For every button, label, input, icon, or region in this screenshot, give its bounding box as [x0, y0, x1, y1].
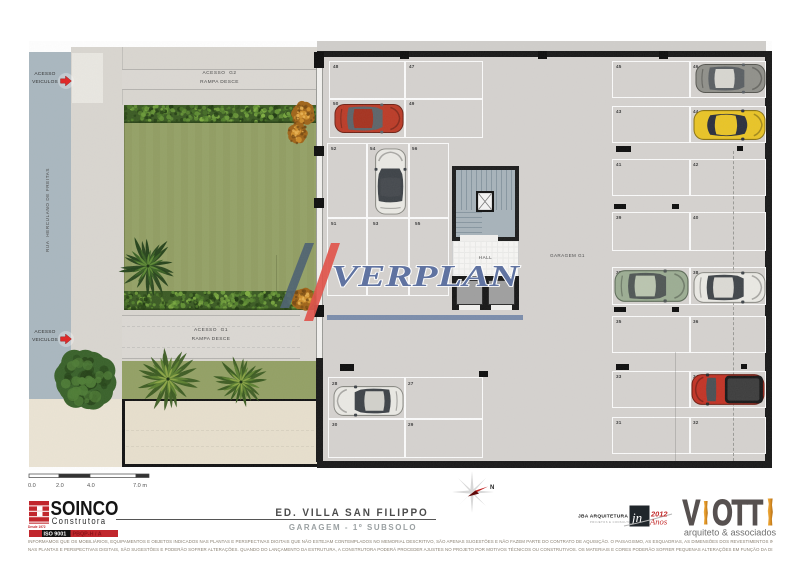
svg-text:Desde 1972: Desde 1972 — [28, 525, 46, 529]
svg-text:Anos: Anos — [649, 517, 668, 527]
svg-text:4.0: 4.0 — [87, 483, 95, 489]
svg-text:7.0 m: 7.0 m — [133, 483, 147, 489]
svg-text:VERPLAN: VERPLAN — [331, 259, 520, 293]
svg-text:arquiteto & associados: arquiteto & associados — [684, 527, 777, 537]
svg-text:PBQP-H / A: PBQP-H / A — [73, 532, 102, 538]
svg-text:N: N — [490, 485, 494, 491]
svg-text:Construtora: Construtora — [52, 515, 107, 526]
svg-text:0.0: 0.0 — [28, 483, 36, 489]
svg-text:ISO 9001: ISO 9001 — [44, 532, 67, 538]
svg-text:2.0: 2.0 — [56, 483, 64, 489]
svg-text:JBA ARQUITETURA: JBA ARQUITETURA — [578, 514, 628, 520]
